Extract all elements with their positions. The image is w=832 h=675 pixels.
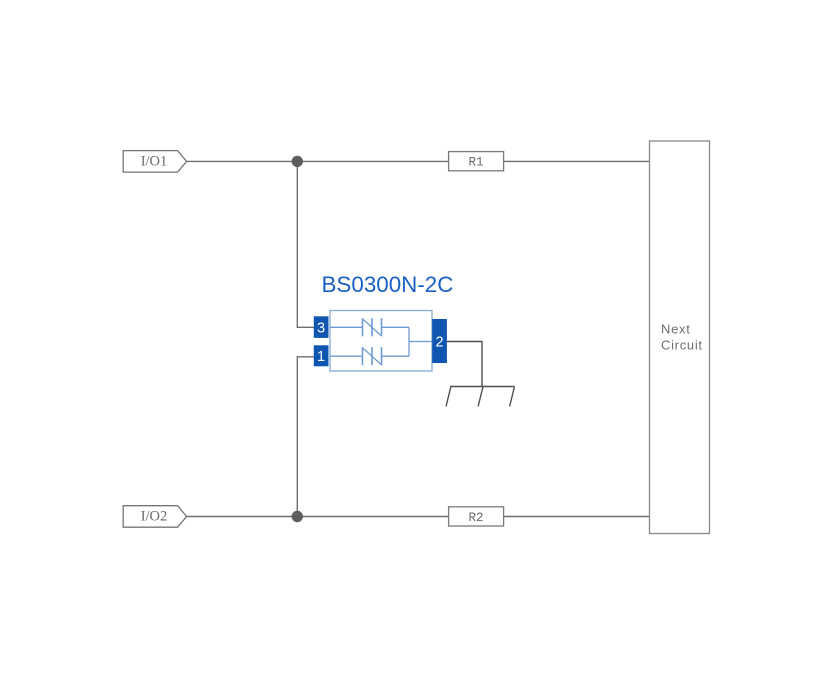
svg-text:2: 2 [435,335,443,351]
svg-text:1: 1 [317,349,325,365]
svg-text:BS0300N-2C: BS0300N-2C [322,272,454,297]
svg-text:Circuit: Circuit [661,338,703,353]
svg-text:R1: R1 [468,156,483,170]
svg-text:I/O2: I/O2 [141,509,168,525]
svg-text:R2: R2 [468,511,483,525]
svg-text:I/O1: I/O1 [141,154,168,170]
svg-text:3: 3 [317,320,325,336]
svg-text:Next: Next [661,322,691,337]
